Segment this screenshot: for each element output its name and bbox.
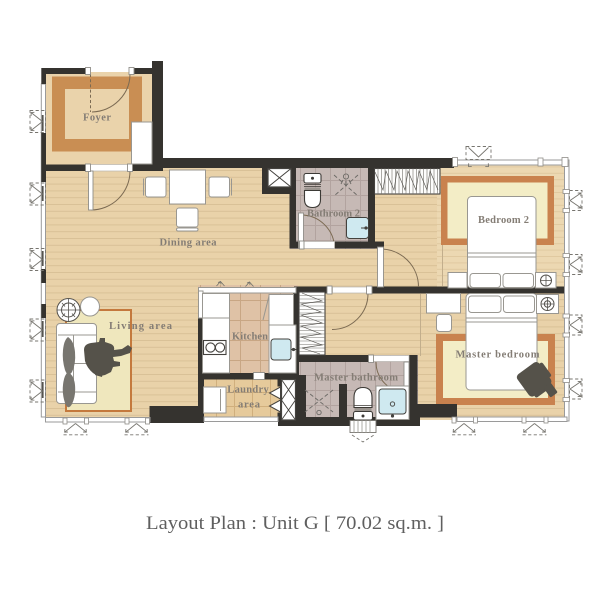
svg-text:Dining area: Dining area <box>160 238 218 249</box>
svg-text:Kitchen: Kitchen <box>232 332 268 343</box>
svg-text:Foyer: Foyer <box>83 113 111 124</box>
svg-text:Master bathroom: Master bathroom <box>314 373 398 384</box>
svg-text:area: area <box>238 400 261 411</box>
svg-text:Laundry: Laundry <box>227 385 269 396</box>
svg-text:Master bedroom: Master bedroom <box>456 350 540 361</box>
svg-text:Living area: Living area <box>109 321 173 332</box>
svg-text:Bedroom 2: Bedroom 2 <box>478 215 529 226</box>
svg-text:Layout Plan : Unit G [ 70.02: Layout Plan : Unit G [ 70.02 sq.m. ] <box>146 513 444 534</box>
svg-text:Bathroom 2: Bathroom 2 <box>307 209 360 220</box>
